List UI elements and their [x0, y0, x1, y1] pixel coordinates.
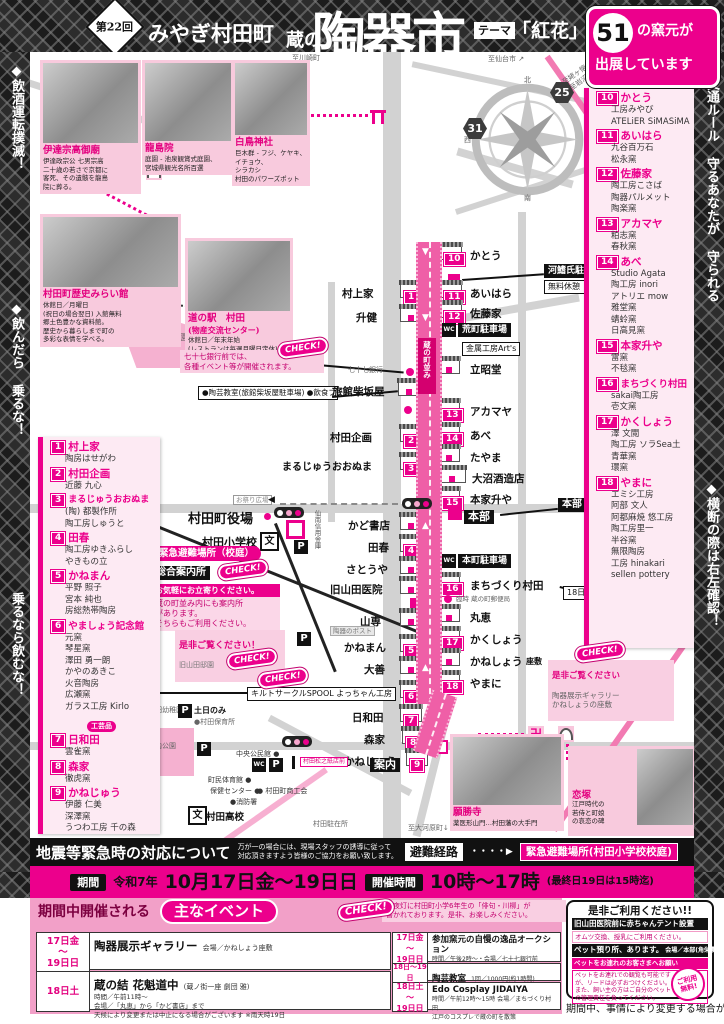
landmark-desc: 江戸時代の 若侍と町娘 の哀恋の碑	[572, 800, 605, 826]
vendor-list-left: 1村上家陶房はせがわ 2村田企画近藤 九心 3まるじゅうおおぬま(陶) 都製作所…	[38, 437, 160, 834]
event-title: 陶器展示ギャラリー	[94, 939, 198, 953]
vendor-members: 陶工房こさば 陶器パルメット 陶楽窯	[611, 181, 691, 216]
vendor-num: 16	[597, 378, 618, 391]
kiln-line2: 出展しています	[595, 57, 693, 73]
shokokai-label: ● 村田町商工会	[257, 787, 307, 796]
events-panel: 期間中開催される 主なイベント CHECK! 常夜灯に村田町小学6年生の「俳句・…	[30, 898, 562, 1014]
left-side-strip: ◆飲酒運転撲滅！ ◆飲んだら 乗るな！ 乗るなら飲むな！	[0, 52, 30, 872]
vendor-members: 徹虎窯	[65, 774, 157, 786]
road	[383, 52, 401, 838]
event-marker	[404, 406, 412, 414]
event-detail: 会場／かねしょう座敷	[203, 944, 273, 952]
vendor-name: 森家	[68, 761, 89, 774]
vendor-members: 伊藤 仁美 深澤窯 うつわ工房 千の森	[65, 800, 157, 835]
events-check-note: 常夜灯に村田町小学6年生の「俳句・川柳」が 書かれております。是非、お楽しみくだ…	[382, 900, 566, 922]
kura-icon	[438, 469, 466, 483]
vendor-name: かくしょう	[621, 416, 674, 429]
annai-note-head: お気軽にお立寄りください。	[152, 584, 280, 597]
pet-head: ペット預り所、あります。	[574, 945, 663, 955]
wc-icon: WC	[252, 758, 266, 772]
landmark-desc: 巨木群 - フジ、ケヤキ、 イチョウ、 シラカシ 村田のパワーズポット	[235, 149, 307, 183]
landmark-card-date-mausoleum: 伊達宗高御廟 伊達政宗公 七男宗高 二十歳の若さで京都に 客死、その遺骸を龍島 …	[40, 60, 141, 194]
landmark-photo	[235, 63, 307, 135]
pet-place: 会場／本部(角栄農機)	[665, 946, 724, 956]
shop-label-yamani: やまに	[470, 676, 502, 691]
annai-label: 案内	[370, 758, 400, 772]
event-detail: 時間／午前11時〜 会場／「丸恵」から「かど書店」まで 天候により変更または中止…	[94, 993, 386, 1020]
left-slogan-3: 乗るなら飲むな！	[7, 592, 26, 696]
shop-label-yamada: 旧山田医院	[330, 582, 383, 597]
sennan-bank-label: 仙南信用金庫	[312, 510, 322, 549]
poster: 第22回 みやぎ村田町 蔵の 陶器市 テーマ 「紅花」 51 の窯元が 出展して…	[0, 0, 724, 1024]
landmark-desc: 庭園 - 池泉観賞式庭園、 宮城県観光名所百選	[145, 155, 231, 172]
traffic-light-icon	[274, 507, 304, 518]
vendor-name: 村上家	[68, 441, 100, 454]
traffic-light-icon	[402, 498, 432, 509]
vendor-num: 6	[51, 620, 65, 633]
shop-label-honke: 本家升や	[470, 492, 512, 507]
route-arrow: ◀	[268, 496, 275, 505]
vendor-name: やまに	[621, 477, 653, 490]
emergency-body: 万が一の場合には、現場スタッフの誘導に従って 対応頂きますよう皆様のご協力をお願…	[238, 843, 398, 861]
road	[328, 282, 335, 522]
landmark-title: 白鳥神社	[235, 137, 307, 148]
shop-label-abe: あべ	[470, 428, 491, 443]
vendor-members: sakai陶工房 壱文窯	[611, 391, 691, 414]
street-arrow: ▲	[422, 664, 429, 673]
event-row: 17日金 〜 19日日 陶器展示ギャラリー 会場／かねしょう座敷	[36, 932, 391, 972]
shop-label-aihara: あいはら	[470, 286, 512, 301]
shop-label-satoya: さとうや	[346, 562, 388, 577]
vendor-num: 15	[597, 340, 618, 353]
street-arrow: ▼	[422, 314, 429, 323]
yakuba-label: 村田町役場	[188, 508, 253, 527]
callout-line	[462, 273, 544, 281]
shop-label-daizen: 大善	[364, 662, 385, 677]
evacuation-spot-marker	[286, 520, 305, 539]
check-badge: CHECK!	[217, 559, 269, 582]
post-office-marker	[444, 595, 452, 603]
event-date: 18日土 〜 19日日	[392, 982, 428, 1012]
vendor-name: かねまん	[68, 570, 110, 583]
period-era: 令和7年	[113, 875, 157, 889]
left-slogan-1: ◆飲酒運転撲滅！	[7, 64, 26, 170]
vendor-members: 近藤 九心	[65, 481, 157, 493]
period-label: 期間	[70, 874, 106, 891]
event-date: 18日土	[36, 971, 90, 1012]
vendor-num: 3	[51, 494, 65, 507]
hoken-label: 保健センター ●	[210, 787, 260, 796]
matsuri-hiroba-label: お祭り広場	[233, 495, 272, 505]
vendor-members: 陶工房ゆきふらし やきもの立	[65, 545, 157, 568]
shop-label-hiwada: 日和田	[352, 710, 384, 725]
shop-label-kikaku: 村田企画	[330, 430, 372, 445]
evacuation-route-label: 避難経路	[405, 843, 463, 861]
landmark-photo	[453, 737, 561, 805]
gallery-check-body: 陶器展示ギャラリー かねしょうの座敷	[552, 691, 670, 710]
donichi-label: 土日のみ	[194, 706, 226, 716]
landmark-card-ryuto: 龍島院 庭園 - 池泉観賞式庭園、 宮城県観光名所百選	[142, 60, 234, 175]
shop-label-tayama: たやま	[470, 450, 502, 465]
evacuation-dashed-route	[280, 503, 398, 505]
parking-icon: P	[178, 704, 192, 718]
landmark-photo	[43, 63, 138, 143]
vendor-members: 粕志窯 春秋窯	[611, 231, 691, 254]
landmark-photo	[637, 749, 693, 825]
vendor-num: 2	[51, 468, 65, 481]
landmark-card-shiratori: 白鳥神社 巨木群 - フジ、ケヤキ、 イチョウ、 シラカシ 村田のパワーズポット	[232, 60, 310, 186]
event-body: 蔵の結 花魁道中 (蔵ノ街一座 劇団 雅) 時間／午前11時〜 会場／「丸恵」か…	[90, 971, 391, 1010]
shop-18-badge: 18	[442, 681, 463, 694]
vendor-name: 田春	[68, 532, 89, 545]
kanesho-zashiki-label: 座敷	[526, 656, 542, 667]
landmark-title: 伊達宗高御廟	[43, 145, 138, 156]
vendor-members: 工房みやび ATELiER SiMASiMA	[611, 105, 691, 128]
emergency-bar: 地震等緊急時の対応について 万が一の場合には、現場スタッフの誘導に従って 対応頂…	[30, 838, 694, 866]
landmark-desc: 休館日／月曜日 (祝日の場合翌日) 入館無料 郷土色豊かな資料館。 歴史から暮ら…	[43, 301, 178, 344]
evacuation-route-arrow: ・・・・▶	[470, 847, 513, 857]
landmark-desc: 伊達政宗公 七男宗高 二十歳の若さで京都に 客死、その遺骸を龍島 院に葬る。	[43, 157, 138, 191]
vendor-num: 9	[51, 787, 65, 800]
vendor-name: アカマヤ	[621, 218, 663, 231]
shop-13-badge: 13	[442, 409, 463, 422]
vendor-num: 12	[597, 168, 618, 181]
vendor-list-right: 10かとう工房みやび ATELiER SiMASiMA 11あいはら九谷百万石 …	[584, 88, 694, 648]
vendor-name: かねじゅう	[68, 787, 121, 800]
parking-icon: P	[297, 632, 311, 646]
landmark-photo	[43, 217, 178, 287]
time-label: 開催時間	[365, 874, 423, 891]
shop-label-kaneman: かねまん	[344, 640, 386, 655]
baby-tent-body: オムツ交換、授乳にご利用ください。	[572, 931, 708, 943]
landmark-photo	[188, 241, 290, 311]
vendor-members: 陶房はせがわ	[65, 454, 157, 466]
left-slogan-2: ◆飲んだら 乗るな！	[7, 302, 26, 436]
vendor-name: あべ	[621, 256, 642, 269]
region-title: みやぎ村田町	[148, 18, 274, 48]
vendor-num: 8	[51, 761, 65, 774]
theme-label: テーマ	[474, 22, 515, 39]
round-badge: 第22回	[85, 0, 144, 57]
right-side-strip: ◆交通ルール 守るあなたが 守られる ◆横断の際は右左確認！	[694, 52, 724, 872]
landmark-title: 村田町歴史みらい館	[43, 289, 178, 300]
service-title: 是非ご利用ください!!	[572, 905, 708, 918]
street-arrow: ▼	[422, 248, 429, 257]
shop-label-kakusho: かくしょう	[470, 632, 523, 647]
event-title: Edo Cosplay JIDAIYA	[432, 985, 556, 995]
yakuba-marker	[264, 513, 271, 520]
event-detail: 時間／午前12時〜15時 会場／まちづくり村田 江戸のコスプレで蔵の町を散策	[432, 995, 556, 1022]
compass-north: 北	[524, 76, 531, 83]
event-row: 18日土 〜 19日日 Edo Cosplay JIDAIYA 時間／午前12時…	[392, 982, 561, 1012]
kiln-count: 51	[593, 13, 633, 53]
vendor-members: Studio Agata 陶工房 inori アトリエ mow 雅堂窯 蜻蛉窯 …	[611, 269, 691, 338]
shop-label-rissho: 立昭堂	[470, 362, 502, 377]
shop-label-masuken: 升健	[356, 310, 377, 325]
bank-label: 七十七銀行	[348, 366, 383, 375]
kiln-suffix: の窯元が	[637, 23, 693, 39]
school-icon: 文	[188, 806, 207, 825]
event-body: 参加窯元の自慢の逸品オークション 時間／午後2時〜・会場／七十七銀行前	[428, 932, 561, 962]
sogo-annai-label: 総合案内所	[152, 566, 210, 580]
vendor-members: 澤 文閲 陶工房 ソラSea土 青華窯 環窯	[611, 429, 691, 475]
vendor-name: 村田企画	[68, 468, 110, 481]
shop-label-onuma: 大沼酒造店	[472, 471, 525, 486]
vendor-num: 10	[597, 92, 618, 105]
honbu-label: 本部	[464, 510, 494, 524]
rinji-post-label: 臨時 蔵の町郵便局	[456, 595, 510, 604]
vendor-num: 4	[51, 532, 65, 545]
annai-note-body: 蔵の町並み内にも案内所 があります。 そちらもご利用ください。	[152, 597, 280, 631]
evacuation-kotei-label: 緊急避難場所（校庭）	[152, 546, 261, 561]
parking-icon: P	[294, 540, 308, 554]
dotted-connector	[306, 114, 368, 117]
period-time-note: (最終日19日は15時迄)	[547, 876, 654, 888]
vendor-num: 7	[51, 734, 65, 747]
street-name: 蔵の町並み	[422, 341, 433, 379]
vendor-num: 17	[597, 416, 618, 429]
vendor-members: 雷窯 不毯窯	[611, 353, 691, 376]
shop-label-maruju: まるじゅうおおぬま	[282, 458, 372, 473]
parking-icon: P	[197, 742, 211, 756]
shobo-label: ●消防署	[230, 798, 257, 807]
matsu-sign-label: 村田松之紙店前	[300, 757, 348, 767]
shop-label-marue: 丸恵	[470, 610, 491, 625]
event-row: 17日金 〜 19日日 参加窯元の自慢の逸品オークション 時間／午後2時〜・会場…	[392, 932, 561, 964]
event-title-sub: (蔵ノ街一座 劇団 雅)	[184, 983, 250, 991]
taiikukan-label: 町民体育館 ●	[208, 776, 251, 785]
round-badge-label: 第22回	[96, 22, 133, 33]
vendor-members: 元窯 琴星窯 澤田 勇一朗 かやのあきこ 火音陶房 広瀬窯 ガラス工房 Kirl…	[65, 633, 157, 714]
period-dates: 10月17日金〜19日日	[165, 872, 358, 893]
vendor-members: 九谷百万石 松永窯	[611, 143, 691, 166]
vendor-num: 1	[51, 441, 65, 454]
okawara-label: 至大河原町↓	[408, 824, 449, 833]
shop-label-satoke: 佐藤家	[470, 306, 502, 321]
vendor-name: 日和田	[68, 734, 100, 747]
vendor-name: まちづくり村田	[621, 378, 688, 391]
street-name-plate: 蔵の町並み	[418, 338, 436, 394]
vendor-name: 佐藤家	[621, 168, 653, 181]
event-title: 参加窯元の自慢の逸品オークション	[432, 935, 556, 955]
event-row: 18日土 蔵の結 花魁道中 (蔵ノ街一座 劇団 雅) 時間／午前11時〜 会場／…	[36, 971, 391, 1012]
vendor-num: 11	[597, 130, 618, 143]
vendor-members: 平野 照子 宮本 純也 房総熱帯陶房	[65, 583, 157, 618]
school-icon: 文	[260, 532, 279, 551]
shop-label-akamaya: アカマヤ	[470, 404, 512, 419]
period-time: 10時〜17時	[430, 872, 540, 893]
signpost-icon	[292, 756, 295, 769]
period-bar: 期間 令和7年 10月17日金〜19日日 開催時間 10時〜17時 (最終日19…	[30, 866, 694, 898]
vendor-members: エミシ工房 阿部 文人 阿都麻焼 悠工房 陶工房里一 半谷窯 無限陶房 工房 h…	[611, 490, 691, 582]
vendor-members: (陶) 都製作所 陶工房しゅうと	[65, 507, 157, 530]
kinzoku-label: 金属工房Art's	[462, 342, 520, 356]
booth-note: ●陶芸教室(旅館柴坂屋駐車場) ●飲食ブース	[198, 386, 338, 400]
hoikusho-label: ●村田保育所	[194, 718, 235, 727]
event-date: 17日金 〜 19日日	[36, 932, 90, 972]
right-slogan-1: ◆交通ルール 守るあなたが 守られる	[702, 62, 721, 302]
events-heading: 期間中開催される	[38, 904, 150, 920]
compass-south: 南	[524, 194, 531, 201]
baby-tent-head: 旧山田医院前に赤ちゃんテント設置	[572, 918, 708, 930]
event-body: 陶器展示ギャラリー 会場／かねしょう座敷	[90, 932, 391, 970]
torii-icon	[370, 110, 386, 124]
vendor-name: かとう	[621, 92, 653, 105]
vendor-num: 13	[597, 218, 618, 231]
wc-icon: WC	[442, 323, 456, 337]
shop-10-badge: 10	[444, 253, 465, 266]
shop-9-badge: 9	[410, 759, 424, 772]
shop-label-kato: かとう	[470, 248, 502, 263]
event-body: Edo Cosplay JIDAIYA 時間／午前12時〜15時 会場／まちづく…	[428, 982, 561, 1010]
kura-street	[416, 242, 442, 704]
gallery-check-box: 是非ご覧ください 陶器展示ギャラリー かねしょうの座敷	[548, 660, 674, 721]
map-sheet: 北 南 東 西 至川崎町 至仙台市 ↗ 至姥ヶ懐・民話の里 (至岩沼市)→ 25…	[30, 52, 694, 838]
event-body: 陶芸教室 1回／1000円(約1時間)	[428, 963, 561, 981]
landmark-card-mirai: 村田町歴史みらい館 休館日／月曜日 (祝日の場合翌日) 入館無料 郷土色豊かな資…	[40, 214, 181, 347]
event-title: 蔵の結 花魁道中	[94, 978, 179, 992]
shop-label-taharu: 田春	[368, 540, 389, 555]
shop-label-kado: かど書店	[348, 518, 390, 533]
shop-label-machidukuri: まちづくり村田	[470, 578, 544, 593]
traffic-light-icon	[282, 736, 312, 747]
shop-label-ryokan: 旅館柴坂屋	[332, 384, 385, 399]
vendor-name: 本家升や	[621, 340, 663, 353]
vendor-name: あいはら	[621, 130, 663, 143]
vendor-members: 雲雀窯	[65, 747, 157, 759]
chuzai-label: 村田駐在所	[313, 820, 348, 829]
koko-label: 村田高校	[206, 809, 244, 823]
landmark-card-gansho: 願勝寺 薬医形山門…村田藩の大手門	[450, 734, 564, 831]
change-note: 期間中、事情により変更する場合があります。	[566, 1004, 724, 1016]
landmark-card-koizuka: 恋塚 江戸時代の 若侍と町娘 の哀恋の碑	[568, 746, 694, 836]
pet-body: ペットをお連れでの観覧も可能ですが、リードは必ずおつけください。また、飼い主の方…	[575, 972, 675, 1002]
landmark-title: 龍島院	[145, 143, 231, 154]
evacuation-place-label: 緊急避難場所(村田小学校校庭)	[520, 843, 678, 861]
quilt-label: キルトサークルSPOOL よっちゃん工房	[247, 687, 396, 701]
vendor-num: 5	[51, 570, 65, 583]
bank-marker	[406, 368, 414, 376]
theme-value: 「紅花」	[512, 16, 588, 43]
shop-label-kanesho: かねしょう	[470, 654, 523, 669]
honmachi-parking-label: 本町駐車場	[458, 554, 511, 568]
pottery-post-label: 陶器のポスト	[330, 626, 375, 636]
vendor-num: 14	[597, 256, 618, 269]
vendor-name: まるじゅうおおぬま	[68, 494, 149, 507]
landmark-photo	[145, 63, 231, 141]
street-arrow: ▲	[422, 522, 429, 531]
annai-note-box: お気軽にお立寄りください。 蔵の町並み内にも案内所 があります。 そちらもご利用…	[152, 584, 280, 631]
shop-label-murakamiya: 村上家	[342, 286, 374, 301]
parking-icon: P	[269, 758, 283, 772]
vendor-num: 18	[597, 477, 618, 490]
wc-icon: WC	[442, 554, 456, 568]
craft-badge: 工芸品	[87, 721, 116, 732]
service-box: 是非ご利用ください!! 旧山田医院前に赤ちゃんテント設置 オムツ交換、授乳にご利…	[566, 900, 714, 999]
right-slogan-2: ◆横断の際は右左確認！	[702, 482, 721, 627]
shop-label-morike: 森家	[364, 732, 385, 747]
landmark-desc: 薬医形山門…村田藩の大手門	[453, 819, 561, 828]
emergency-title: 地震等緊急時の対応について	[36, 842, 231, 863]
event-date: 17日金 〜 19日日	[392, 932, 428, 964]
kiln-count-badge: 51 の窯元が 出展しています	[586, 6, 720, 88]
aramachi-parking-label: 荒町駐車場	[458, 323, 511, 337]
direction-sendai: 至仙台市 ↗	[488, 55, 524, 64]
landmark-title: 願勝寺	[453, 807, 561, 818]
vendor-name: やましょう記念館	[68, 620, 144, 633]
landmark-subtitle: (物産交流センター)	[188, 325, 290, 336]
honbu-marker	[448, 506, 462, 520]
gallery-check-head: 是非ご覧ください	[552, 672, 670, 682]
landmark-title: 道の駅 村田	[188, 313, 290, 324]
events-heading-badge: 主なイベント	[160, 899, 278, 924]
